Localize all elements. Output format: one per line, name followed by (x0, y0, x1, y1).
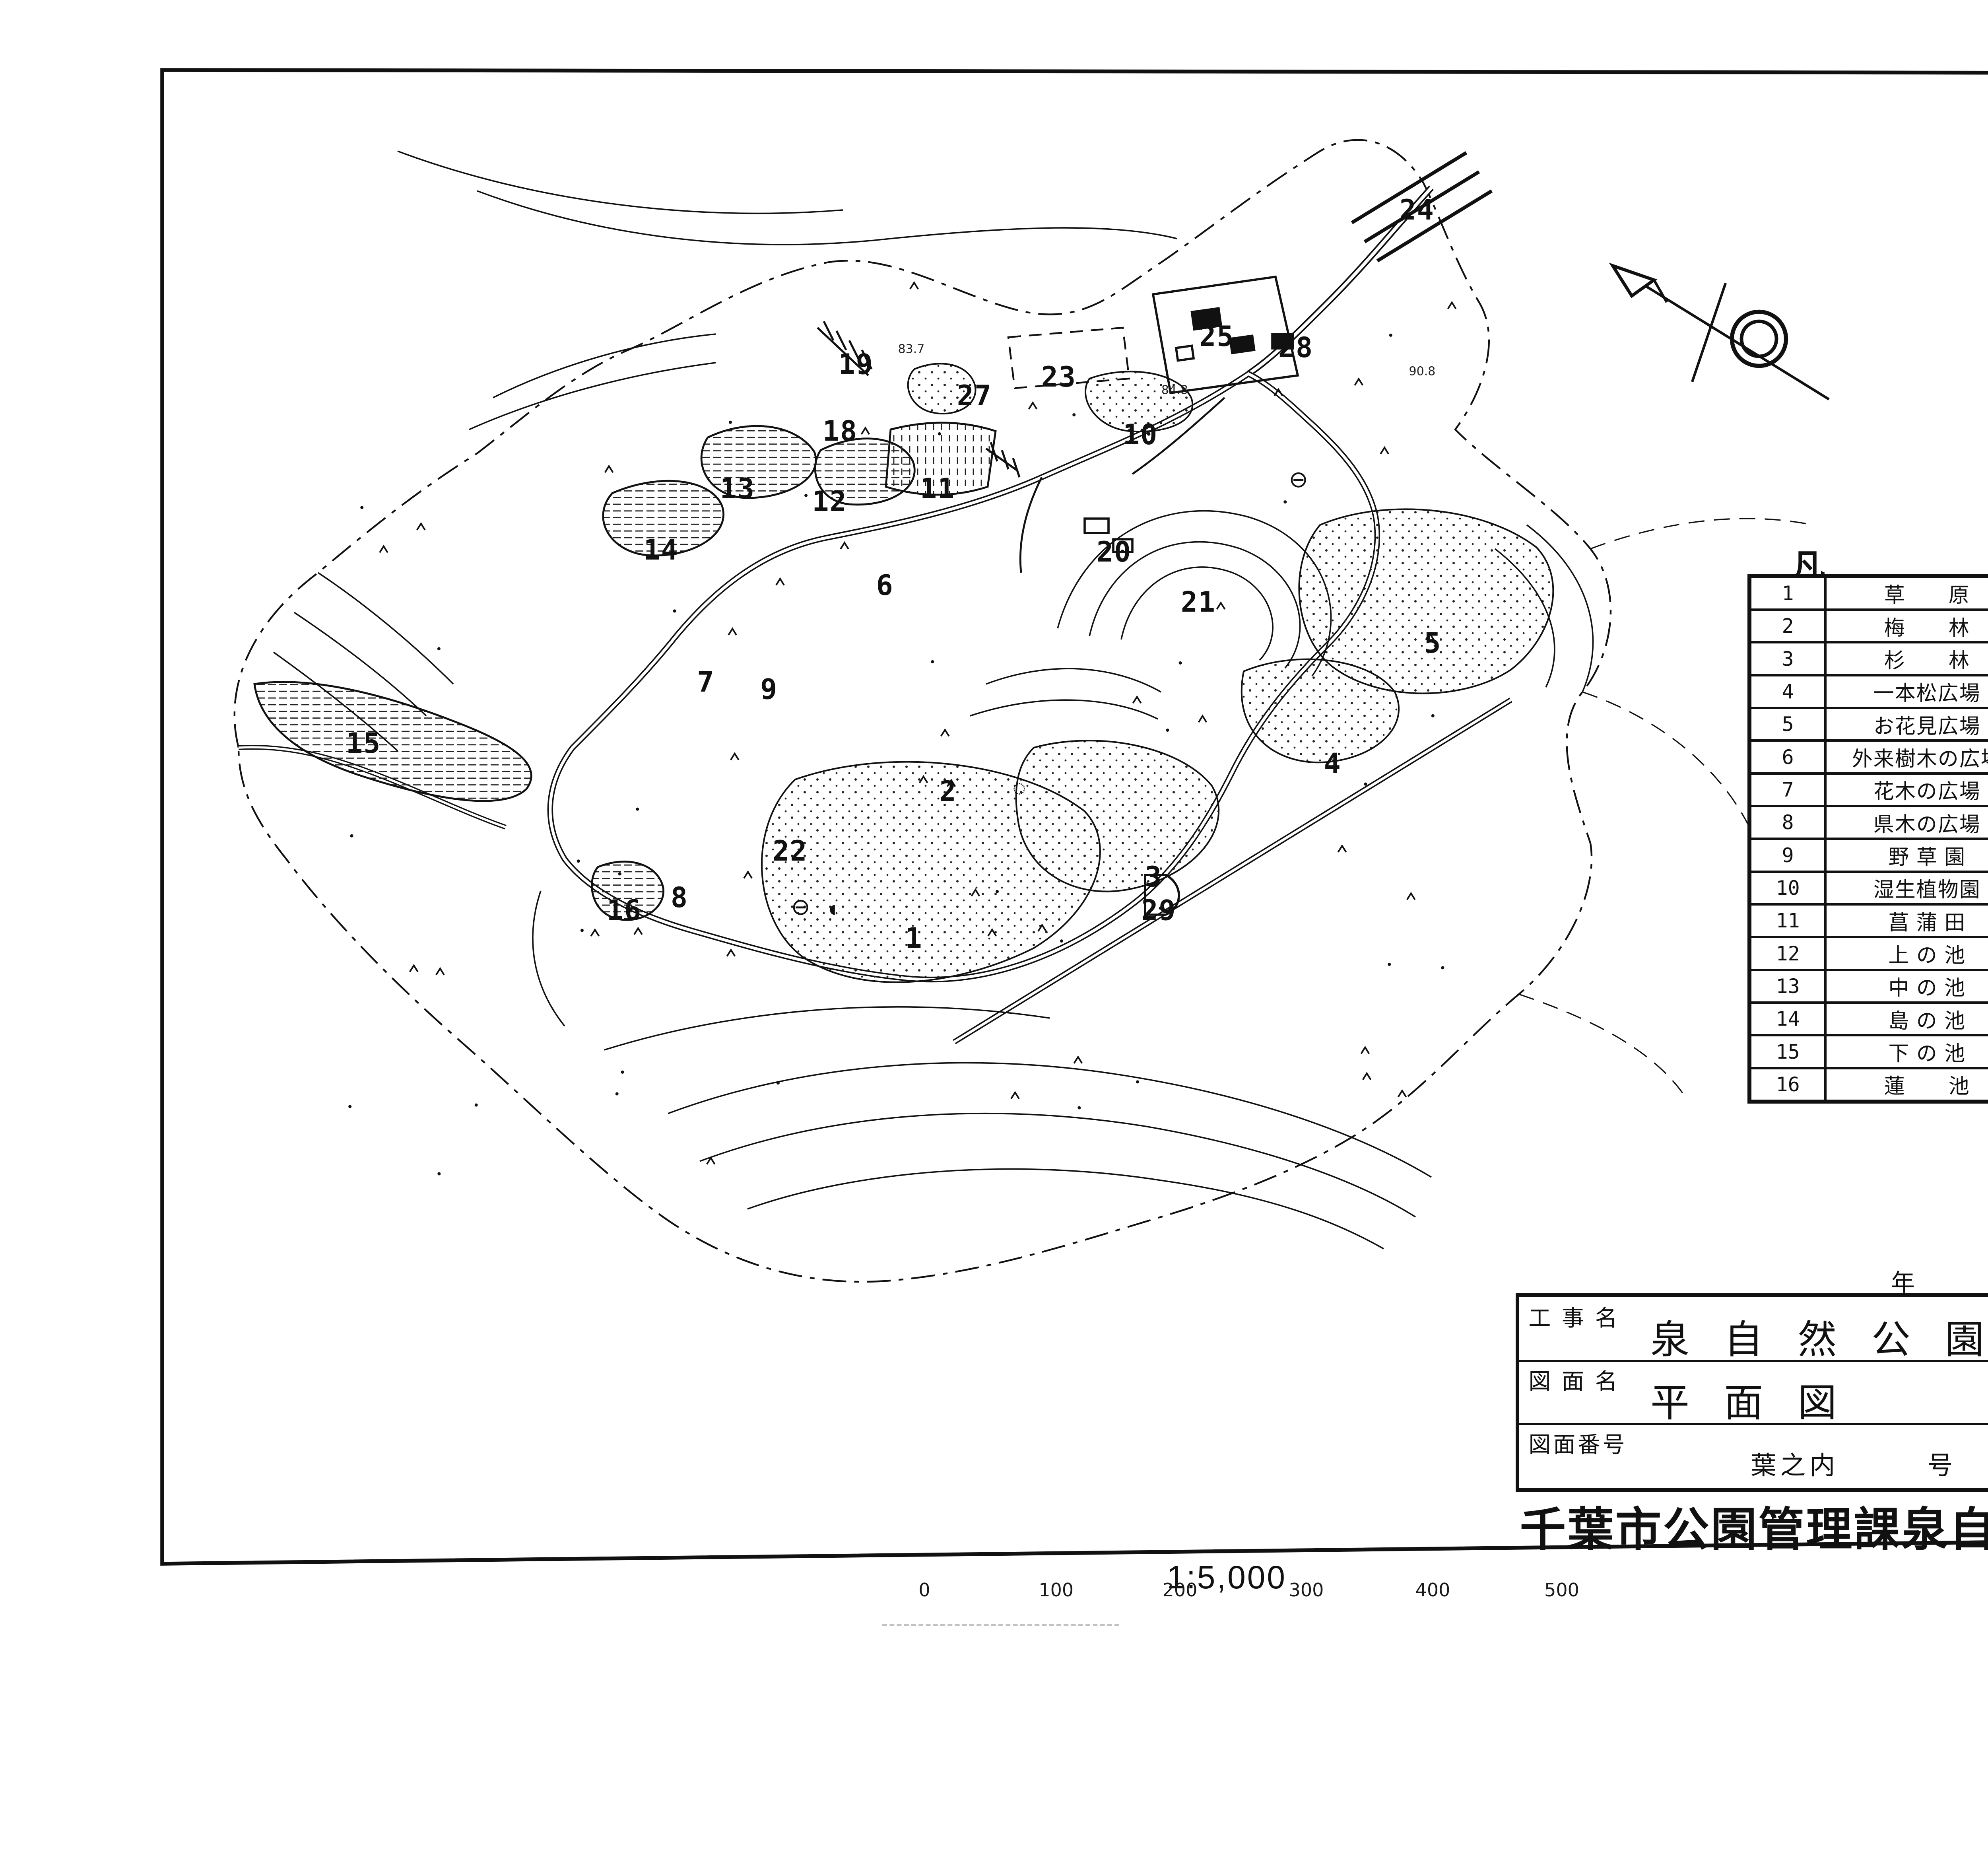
legend-no: 5 (1750, 708, 1825, 740)
toilet-symbol: ⊖ (1289, 466, 1308, 493)
tree-mark (1441, 966, 1444, 969)
organization-name: 千葉市公園管理課泉自然公園事務所 (1499, 1492, 1988, 1559)
building (1176, 346, 1194, 360)
map-label-12: 12 (812, 485, 847, 518)
scale-tick: 0 (918, 1579, 930, 1601)
map-label-25: 25 (1199, 320, 1234, 353)
tree-mark (1355, 379, 1363, 385)
map-label-22: 22 (773, 835, 808, 867)
tree-mark (410, 966, 418, 972)
tree-mark (931, 660, 934, 663)
tree-mark (1179, 661, 1182, 665)
map-label-24: 24 (1400, 194, 1435, 226)
outside-road (398, 151, 843, 214)
tree-mark (1398, 1090, 1406, 1097)
map-label-8: 8 (671, 881, 688, 914)
legend-label: 下 の 池 (1825, 1035, 1988, 1068)
title-block-row-drawing: 図 面 名 平 面 図 縮尺 1:5,000 (1519, 1360, 1988, 1425)
map-label-16: 16 (607, 894, 642, 927)
tree-mark (1338, 846, 1346, 852)
title-block-row-number: 図面番号 葉之内 号 設計者 : (1519, 1423, 1988, 1488)
drawing-number-value: 葉之内 号 (1751, 1445, 1957, 1482)
tree-mark (1380, 447, 1388, 454)
tree-mark (1077, 1106, 1081, 1110)
tree-mark (1283, 500, 1287, 503)
map-label-9: 9 (760, 673, 778, 705)
map-label-29: 29 (1141, 894, 1176, 927)
drawing-number-label: 図面番号 (1528, 1427, 1627, 1459)
tree-mark (360, 506, 363, 509)
legend-no: 10 (1750, 872, 1825, 904)
tree-mark (437, 1172, 441, 1175)
tree-mark (1060, 939, 1063, 943)
park-boundary (235, 140, 1611, 1282)
legend-label: 島 の 池 (1825, 1003, 1988, 1035)
tree-mark (475, 1104, 478, 1107)
legend-no: 11 (1750, 904, 1825, 937)
tree-mark (350, 834, 353, 838)
tree-mark (776, 579, 784, 585)
pond-shimo-15 (254, 682, 531, 801)
spot-elevation: 84.8 (1161, 383, 1188, 397)
tree-mark (996, 890, 999, 893)
tree-mark (1029, 403, 1037, 409)
tree-mark (1199, 716, 1207, 722)
map-label-4: 4 (1324, 747, 1342, 780)
tree-mark (673, 609, 676, 612)
title-block-row-project: 工 事 名 泉 自 然 公 園 (1519, 1297, 1988, 1362)
drawing-name-label: 図 面 名 (1528, 1364, 1619, 1396)
legend-label: 蓮 池 (1825, 1068, 1988, 1101)
tree-mark (1074, 1057, 1082, 1063)
tree-mark (436, 968, 444, 975)
map-label-11: 11 (920, 472, 955, 505)
spot-elevation: 83.7 (898, 342, 924, 356)
tree-mark (861, 428, 869, 434)
map-label-18: 18 (823, 415, 858, 447)
tree-mark (1361, 1047, 1369, 1053)
tree-mark (1011, 1092, 1019, 1099)
tree-mark (615, 1092, 619, 1096)
legend-label: 外来樹木の広場 (1825, 740, 1988, 773)
map-label-13: 13 (720, 472, 755, 505)
map-label-23: 23 (1041, 361, 1076, 393)
tree-mark (577, 859, 580, 863)
tree-mark (910, 283, 918, 289)
tree-mark (1389, 334, 1392, 337)
map-label-14: 14 (643, 534, 678, 566)
legend-label: 湿生植物園 (1825, 872, 1988, 904)
tree-mark (1407, 893, 1415, 900)
legend-no: 15 (1750, 1035, 1825, 1068)
area-ipponmatsu-4 (1242, 659, 1399, 762)
tree-mark (348, 1105, 351, 1108)
animal-hut-20 (1085, 519, 1109, 533)
tree-mark (728, 629, 736, 635)
project-name-value: 泉 自 然 公 園 (1650, 1308, 1988, 1364)
north-arrow-icon (1613, 266, 1829, 399)
legend-label: 野 草 園 (1825, 839, 1988, 871)
scanned-park-plan-sheet: 1181 凡 例 1草 原17紅 葉 園2梅 林18築 山3杉 林19そ像の広場… (0, 0, 1988, 1858)
tree-mark (1072, 413, 1076, 416)
legend-label: 花木の広場 (1825, 774, 1988, 806)
tree-mark (1448, 302, 1456, 309)
legend-no: 7 (1750, 774, 1825, 806)
tree-mark (591, 930, 599, 936)
drawing-name-value: 平 面 図 (1650, 1371, 1848, 1428)
map-label-2: 2 (940, 775, 957, 808)
legend-label: 杉 林 (1825, 642, 1988, 675)
tree-mark (1431, 714, 1435, 717)
tree-mark (580, 929, 584, 932)
legend-no: 4 (1750, 675, 1825, 708)
tree-mark (634, 928, 642, 935)
structure-symbol: ◌ (1012, 774, 1026, 801)
scale-tick: 400 (1415, 1579, 1450, 1601)
tree-mark (621, 1071, 624, 1074)
legend-label: 県木の広場 (1825, 806, 1988, 839)
legend-label: 中 の 池 (1825, 970, 1988, 1003)
map-label-5: 5 (1424, 627, 1441, 659)
tree-mark (777, 1081, 780, 1084)
tree-mark (1136, 1080, 1139, 1083)
legend-no: 16 (1750, 1068, 1825, 1101)
legend-table: 1草 原17紅 葉 園2梅 林18築 山3杉 林19そ像の広場4一本松広場20小… (1747, 574, 1988, 1104)
legend-label: 草 原 (1825, 577, 1988, 610)
legend-label: お花見広場 (1825, 708, 1988, 740)
legend-label: 菖 蒲 田 (1825, 904, 1988, 937)
map-label-1: 1 (905, 922, 922, 954)
legend-no: 13 (1750, 970, 1825, 1003)
legend-no: 6 (1750, 740, 1825, 773)
tree-mark (437, 647, 441, 650)
tree-mark (1217, 603, 1225, 609)
tree-mark (605, 466, 613, 472)
legend-no: 14 (1750, 1003, 1825, 1035)
tree-mark (938, 432, 941, 435)
tree-mark (731, 754, 739, 760)
map-label-3: 3 (1145, 861, 1162, 893)
water-fountain-symbol: ◐ (828, 895, 842, 922)
legend-no: 9 (1750, 839, 1825, 871)
map-label-28: 28 (1278, 331, 1313, 364)
toilet-symbol: ⊖ (791, 893, 810, 920)
tree-mark (1388, 963, 1391, 966)
scale-bar-marks (882, 1624, 1119, 1626)
legend-no: 8 (1750, 806, 1825, 839)
title-block: 工 事 名 泉 自 然 公 園 図 面 名 平 面 図 縮尺 1:5,000 図… (1516, 1293, 1988, 1492)
tree-mark (941, 730, 949, 736)
tree-mark (744, 872, 752, 878)
scale-tick: 300 (1289, 1579, 1324, 1601)
tree-mark (1166, 729, 1169, 732)
tree-mark (1363, 1073, 1371, 1080)
tree-mark (636, 808, 639, 811)
tree-mark (841, 543, 848, 549)
scale-tick: 100 (1039, 1579, 1074, 1601)
map-label-21: 21 (1181, 586, 1216, 618)
spot-elevation: 90.8 (1409, 365, 1436, 379)
legend-label: 一本松広場 (1825, 675, 1988, 708)
map-drawing (0, 0, 1988, 1858)
map-label-15: 15 (346, 727, 381, 760)
scale-tick: 500 (1544, 1579, 1579, 1601)
pond-naka-13 (701, 426, 816, 498)
map-label-7: 7 (697, 666, 714, 698)
tree-mark (1133, 697, 1141, 703)
map-label-10: 10 (1123, 418, 1158, 451)
map-label-6: 6 (876, 569, 894, 602)
legend-no: 12 (1750, 937, 1825, 970)
tree-mark (729, 421, 732, 424)
map-label-20: 20 (1097, 536, 1132, 568)
project-name-label: 工 事 名 (1528, 1300, 1619, 1333)
tree-mark (380, 546, 388, 552)
tree-mark (417, 524, 425, 530)
tree-mark (804, 494, 808, 497)
legend-label: 上 の 池 (1825, 937, 1988, 970)
legend-label: 梅 林 (1825, 610, 1988, 642)
area-meadow-1 (762, 762, 1100, 982)
map-label-27: 27 (957, 379, 992, 412)
map-label-19: 19 (839, 348, 874, 381)
tree-mark (1364, 783, 1367, 786)
legend-no: 3 (1750, 642, 1825, 675)
legend-no: 2 (1750, 610, 1825, 642)
tree-mark (727, 950, 735, 956)
scale-tick: 200 (1163, 1579, 1198, 1601)
tree-mark (618, 872, 621, 875)
legend-no: 1 (1750, 577, 1825, 610)
